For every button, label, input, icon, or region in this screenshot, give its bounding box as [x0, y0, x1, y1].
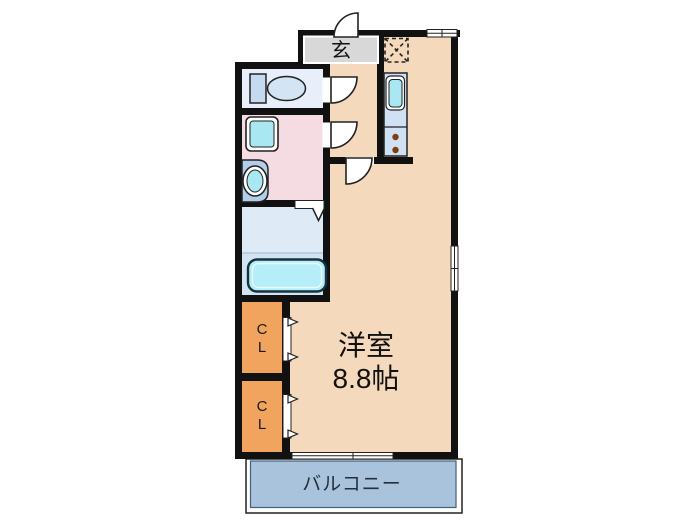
wall-toilet-washroom — [235, 108, 330, 115]
closet1-label-l: L — [258, 339, 266, 356]
wall-left — [235, 62, 242, 459]
washing-machine-pan-icon — [250, 121, 274, 147]
main-room-floor-left-extension — [290, 302, 335, 452]
bathroom-fixtures — [248, 260, 326, 292]
window-bottom — [292, 453, 393, 460]
stove-burner-icon-1 — [392, 134, 398, 140]
stove-burner-icon-2 — [392, 147, 398, 153]
toilet-bowl-icon — [268, 77, 306, 101]
closet1-label-c: C — [257, 321, 268, 338]
balcony: バルコニー — [246, 459, 462, 513]
bathroom-floor-upper — [242, 207, 323, 253]
main-room-size: 8.8帖 — [333, 363, 400, 394]
balcony-label: バルコニー — [302, 474, 402, 495]
window-right — [451, 246, 458, 291]
kitchen-sink-icon — [389, 80, 402, 108]
bathtub-icon — [248, 260, 326, 292]
main-room-floor — [330, 164, 451, 452]
entrance-door-swing — [334, 13, 358, 37]
window-top — [427, 30, 457, 38]
wall-right — [451, 30, 458, 459]
bathroom-sliding-door — [295, 201, 324, 209]
closet2-label-c: C — [257, 398, 268, 415]
genkan-label: 玄 — [331, 39, 351, 62]
closet2-label-l: L — [258, 416, 266, 433]
wall-closet-divider — [235, 373, 290, 381]
toilet-door-opening — [323, 78, 332, 103]
toilet-fixture — [250, 74, 306, 103]
kitchen-counter — [384, 73, 407, 156]
toilet-tank-icon — [250, 74, 266, 103]
washbasin-icon — [247, 170, 263, 192]
washroom-door-opening — [323, 123, 332, 148]
floorplan-page: バルコニー 玄 — [0, 0, 700, 525]
main-room-name: 洋室 — [338, 330, 394, 361]
floorplan-svg: バルコニー 玄 — [0, 0, 700, 525]
